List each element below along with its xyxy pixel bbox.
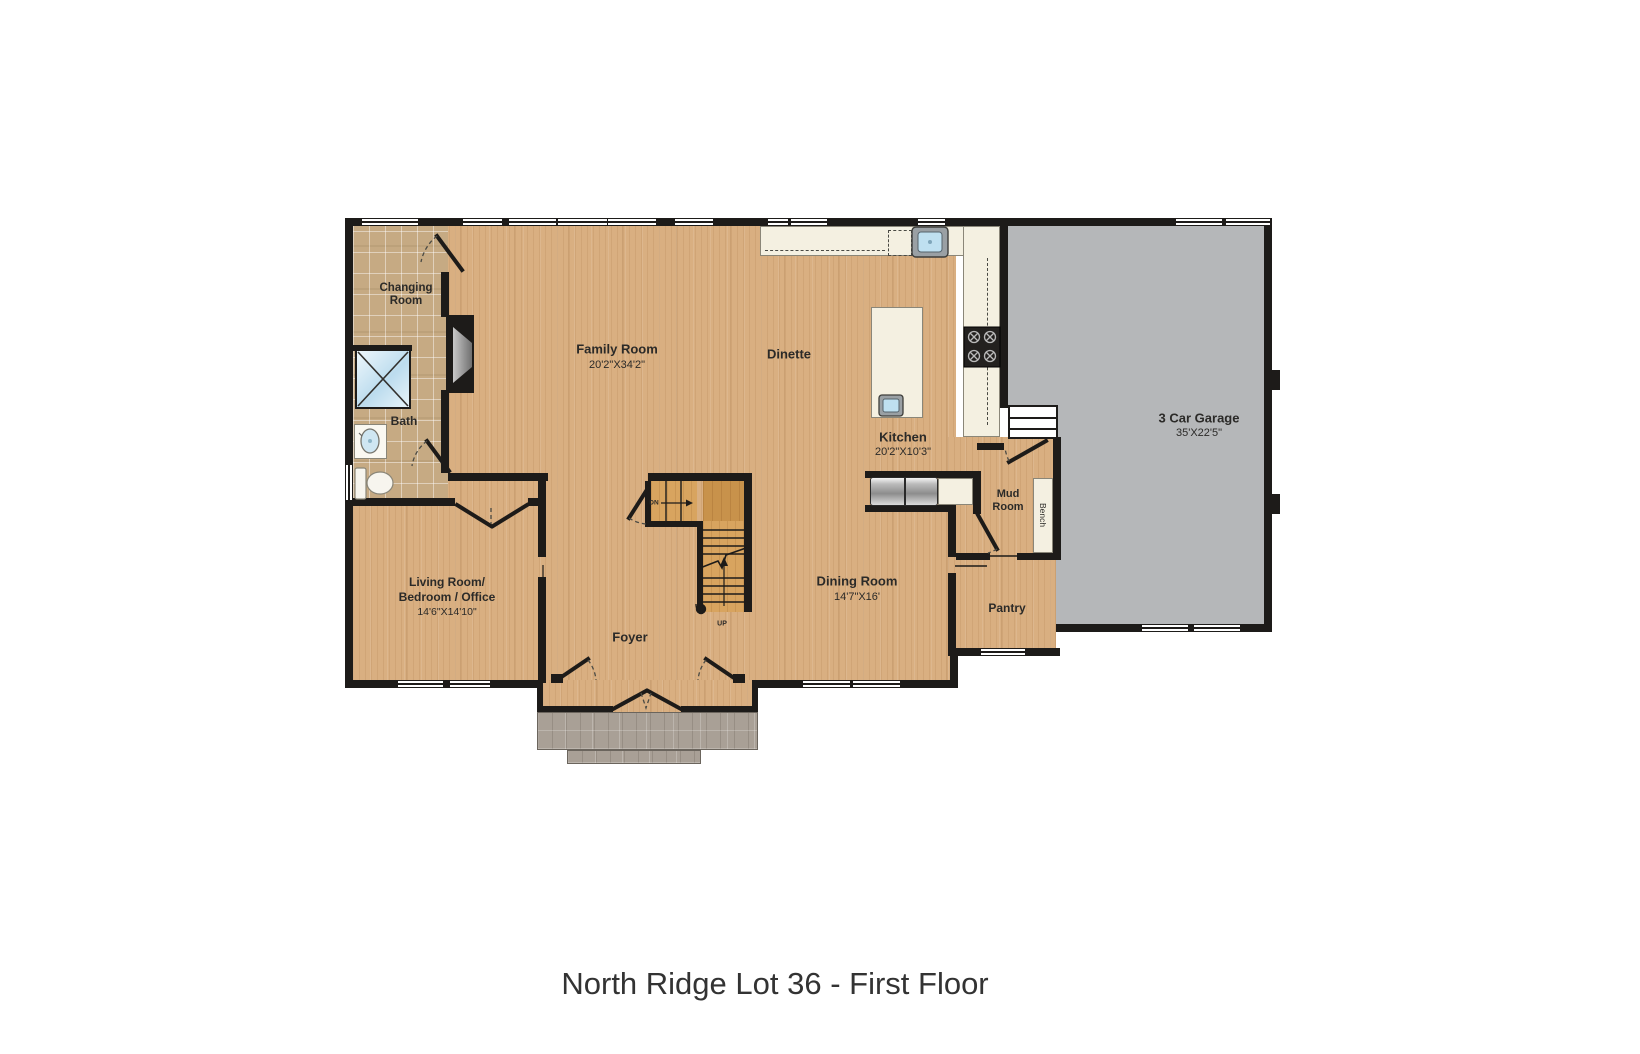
foyer-label: Foyer bbox=[612, 630, 647, 645]
kitchen-counter-right bbox=[963, 226, 1000, 437]
garage-door bbox=[1194, 624, 1240, 632]
wall bbox=[956, 553, 990, 560]
window bbox=[463, 218, 502, 226]
wall bbox=[948, 573, 956, 656]
pantry-label: Pantry bbox=[988, 601, 1025, 615]
wall bbox=[733, 674, 745, 683]
window bbox=[675, 218, 713, 226]
window bbox=[768, 218, 788, 226]
wall bbox=[948, 505, 956, 557]
wall bbox=[345, 218, 353, 688]
bath-label: Bath bbox=[391, 414, 418, 428]
wall bbox=[977, 443, 1004, 450]
dining-room-dims: 14'7"X16' bbox=[834, 591, 880, 603]
garage-floor bbox=[1008, 226, 1264, 408]
wall bbox=[744, 473, 752, 612]
shower bbox=[355, 349, 411, 409]
window bbox=[362, 218, 418, 226]
wall bbox=[950, 656, 958, 680]
window bbox=[558, 218, 607, 226]
window bbox=[509, 218, 556, 226]
mud-room-bench: Bench bbox=[1033, 478, 1053, 553]
wall bbox=[973, 471, 981, 514]
wall bbox=[1017, 553, 1053, 560]
living-room-dims: 14'6"X14'10" bbox=[417, 606, 476, 618]
counter-by-fridge bbox=[938, 478, 973, 505]
wall bbox=[681, 706, 758, 712]
mud-room-label: Mud bbox=[997, 488, 1020, 500]
kitchen-island bbox=[871, 307, 923, 418]
stair-landing bbox=[703, 481, 744, 521]
wall bbox=[441, 272, 449, 317]
mud-room-label2: Room bbox=[992, 501, 1023, 513]
window bbox=[853, 680, 900, 688]
wall bbox=[551, 674, 563, 683]
living-room-label2: Bedroom / Office bbox=[399, 590, 496, 604]
stair-up-label: UP bbox=[717, 621, 727, 628]
wall bbox=[1053, 437, 1061, 560]
stair-lower-run bbox=[703, 521, 744, 612]
window bbox=[918, 218, 945, 226]
wall bbox=[537, 706, 613, 712]
garage-steps bbox=[1008, 405, 1058, 439]
garage-wall-bump bbox=[1272, 370, 1280, 390]
garage-wall-bump bbox=[1272, 494, 1280, 514]
family-room-label: Family Room bbox=[576, 342, 658, 357]
window bbox=[1226, 218, 1270, 226]
dinette-label: Dinette bbox=[767, 347, 811, 362]
bench-label: Bench bbox=[1038, 503, 1048, 527]
wall bbox=[1264, 218, 1272, 632]
window bbox=[345, 465, 353, 500]
window bbox=[1176, 218, 1222, 226]
window bbox=[450, 680, 490, 688]
wall bbox=[441, 390, 449, 473]
garage-label: 3 Car Garage bbox=[1159, 411, 1240, 426]
living-room-label: Living Room/ bbox=[409, 575, 485, 589]
wall bbox=[345, 498, 455, 506]
front-porch bbox=[537, 712, 758, 750]
wall bbox=[648, 473, 752, 481]
window bbox=[803, 680, 850, 688]
upper-cabinet-line bbox=[987, 258, 988, 425]
bath-sink-counter bbox=[354, 424, 387, 459]
window bbox=[981, 648, 1025, 656]
refrigerator bbox=[870, 477, 938, 506]
dishwasher-outline bbox=[888, 230, 912, 256]
wall bbox=[645, 521, 705, 527]
dining-room-label: Dining Room bbox=[817, 574, 898, 589]
plan-title: North Ridge Lot 36 - First Floor bbox=[561, 966, 988, 1002]
garage-dims: 35'X22'5" bbox=[1176, 427, 1222, 439]
floor-plan-canvas: Bench bbox=[0, 0, 1640, 1054]
window bbox=[608, 218, 656, 226]
kitchen-dims: 20'2"X10'3" bbox=[875, 446, 931, 458]
window bbox=[791, 218, 827, 226]
changing-room-label: Changing bbox=[379, 282, 432, 294]
wall bbox=[448, 473, 548, 481]
front-porch-step bbox=[567, 750, 701, 764]
wall bbox=[538, 477, 546, 557]
stair-down-label: DN bbox=[649, 500, 658, 507]
wall bbox=[865, 505, 948, 512]
garage-door bbox=[1142, 624, 1188, 632]
kitchen-label: Kitchen bbox=[879, 430, 927, 445]
wall bbox=[1000, 218, 1008, 408]
garage-floor-lower bbox=[1056, 405, 1264, 624]
window bbox=[398, 680, 443, 688]
changing-room-label2: Room bbox=[390, 295, 423, 307]
wall bbox=[538, 577, 546, 683]
family-room-dims: 20'2"X34'2" bbox=[589, 359, 645, 371]
upper-cabinet-line bbox=[765, 250, 885, 251]
